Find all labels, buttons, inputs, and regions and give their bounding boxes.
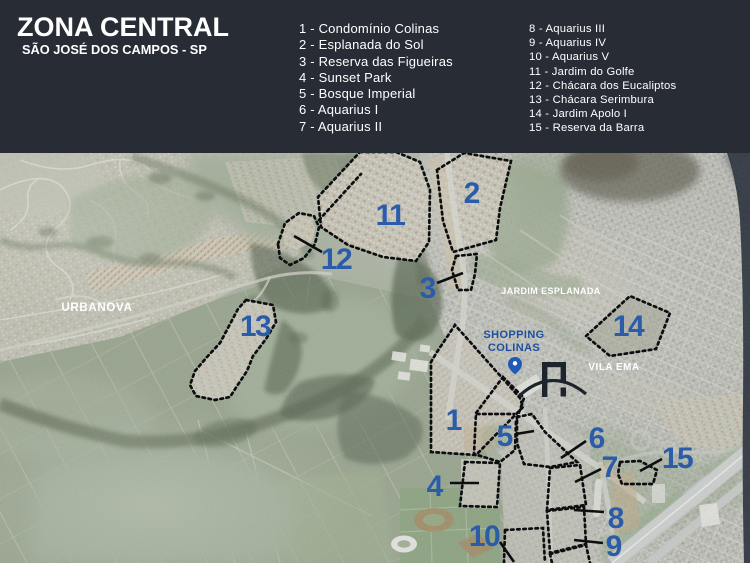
svg-text:COLINAS: COLINAS	[488, 342, 540, 354]
svg-text:1: 1	[446, 404, 463, 437]
svg-text:7: 7	[602, 451, 619, 484]
svg-text:5: 5	[497, 420, 514, 453]
svg-text:9: 9	[606, 530, 623, 563]
svg-text:4: 4	[427, 470, 444, 503]
svg-text:15: 15	[662, 442, 693, 475]
svg-text:13: 13	[240, 310, 271, 343]
svg-text:3: 3	[420, 272, 437, 305]
svg-text:VILA EMA: VILA EMA	[588, 362, 639, 373]
svg-text:URBANOVA: URBANOVA	[61, 302, 132, 314]
svg-text:JARDIM ESPLANADA: JARDIM ESPLANADA	[501, 286, 601, 296]
svg-text:SHOPPING: SHOPPING	[483, 329, 544, 341]
svg-text:14: 14	[613, 310, 645, 343]
svg-text:11: 11	[376, 199, 406, 232]
svg-text:12: 12	[321, 243, 352, 276]
svg-text:10: 10	[469, 520, 500, 553]
svg-text:2: 2	[464, 177, 481, 210]
